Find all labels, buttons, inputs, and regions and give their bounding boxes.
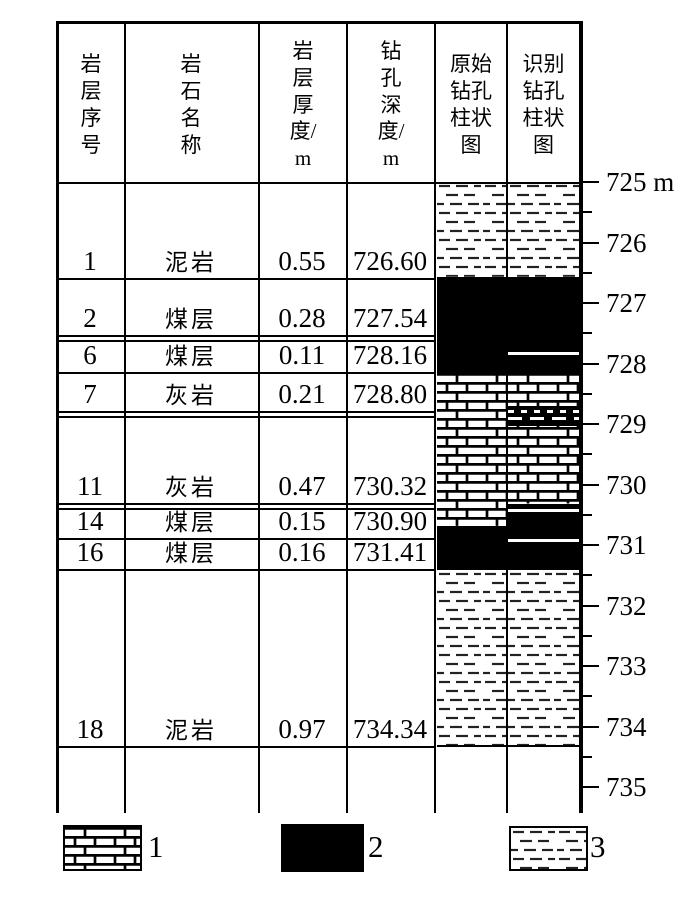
cell-thickness: 0.21 xyxy=(261,379,343,410)
depth-tick-major xyxy=(583,423,599,425)
row-divider-double xyxy=(56,416,436,418)
cell-layer-no: 14 xyxy=(59,506,121,537)
cell-layer-no: 16 xyxy=(59,537,121,568)
header-layer-no: 岩 层 序 号 xyxy=(58,30,124,180)
cell-depth: 731.41 xyxy=(349,537,431,568)
lith-band-mudstone xyxy=(437,182,506,279)
cell-thickness: 0.28 xyxy=(261,303,343,334)
column-divider xyxy=(506,21,508,813)
cell-layer-no: 1 xyxy=(59,246,121,277)
cell-layer-no: 7 xyxy=(59,379,121,410)
cell-rock-name: 煤层 xyxy=(127,534,255,568)
cell-layer-no: 11 xyxy=(59,471,121,502)
legend-label-limestone: 1 xyxy=(148,829,178,865)
cell-rock-name: 泥岩 xyxy=(127,243,255,277)
lith-band-coal xyxy=(508,506,579,570)
cell-thickness: 0.97 xyxy=(261,714,343,745)
cell-depth: 734.34 xyxy=(349,714,431,745)
cell-depth: 728.16 xyxy=(349,340,431,371)
depth-tick-label: 729 xyxy=(606,408,647,440)
depth-tick-major xyxy=(583,181,599,183)
depth-tick-minor xyxy=(583,332,592,334)
row-divider xyxy=(56,372,436,374)
header-original-log: 原始 钻孔 柱状 图 xyxy=(438,30,504,180)
layer-separator-line xyxy=(508,509,579,512)
table-header-divider xyxy=(56,182,583,184)
lith-band-mudstone xyxy=(437,570,506,747)
row-divider xyxy=(56,569,436,571)
depth-tick-label: 727 xyxy=(606,287,647,319)
cell-rock-name: 泥岩 xyxy=(127,711,255,745)
depth-tick-minor xyxy=(583,574,592,576)
cell-thickness: 0.11 xyxy=(261,340,343,371)
depth-tick-minor xyxy=(583,272,592,274)
depth-tick-minor xyxy=(583,695,592,697)
cell-thickness: 0.15 xyxy=(261,506,343,537)
cell-depth: 730.90 xyxy=(349,506,431,537)
depth-tick-minor xyxy=(583,211,592,213)
depth-tick-label: 726 xyxy=(606,227,647,259)
depth-tick-major xyxy=(583,786,599,788)
row-divider xyxy=(56,746,436,748)
cell-thickness: 0.47 xyxy=(261,471,343,502)
header-rock-name: 岩 石 名 称 xyxy=(126,30,256,180)
cell-rock-name: 煤层 xyxy=(127,337,255,371)
boundary-dotted-line xyxy=(508,410,579,413)
depth-tick-label: 728 xyxy=(606,348,647,380)
layer-separator-line xyxy=(508,352,579,355)
depth-tick-minor xyxy=(583,393,592,395)
cell-rock-name: 灰岩 xyxy=(127,376,255,410)
lith-band-coal xyxy=(508,279,579,373)
depth-tick-major xyxy=(583,242,599,244)
depth-tick-minor xyxy=(583,756,592,758)
depth-tick-label: 735 xyxy=(606,771,647,803)
limestone-swatch-icon xyxy=(63,825,142,871)
depth-tick-label: 730 xyxy=(606,469,647,501)
depth-tick-major xyxy=(583,363,599,365)
layer-boundary-band xyxy=(508,406,579,426)
lith-band-limestone xyxy=(437,373,506,528)
depth-tick-minor xyxy=(583,635,592,637)
lith-band-coal xyxy=(437,528,506,570)
lith-band-mudstone xyxy=(508,570,579,747)
depth-tick-label: 732 xyxy=(606,590,647,622)
borehole-log-figure: 岩 层 序 号 岩 石 名 称 岩 层 厚 度/ m 钻 孔 深 度/ m 原始… xyxy=(0,0,700,919)
depth-tick-major xyxy=(583,726,599,728)
depth-tick-label: 733 xyxy=(606,650,647,682)
depth-tick-major xyxy=(583,665,599,667)
header-drill-depth: 钻 孔 深 度/ m xyxy=(350,30,432,180)
legend-label-mudstone: 3 xyxy=(590,829,620,865)
depth-tick-minor xyxy=(583,453,592,455)
cell-rock-name: 煤层 xyxy=(127,300,255,334)
header-identified-log: 识别 钻孔 柱状 图 xyxy=(510,30,577,180)
cell-depth: 730.32 xyxy=(349,471,431,502)
depth-tick-label: 731 xyxy=(606,529,647,561)
depth-tick-minor xyxy=(583,514,592,516)
cell-layer-no: 2 xyxy=(59,303,121,334)
lith-band-limestone xyxy=(508,373,579,505)
depth-tick-major xyxy=(583,605,599,607)
depth-ruler-line xyxy=(579,21,583,813)
cell-thickness: 0.55 xyxy=(261,246,343,277)
lith-band-coal xyxy=(437,279,506,373)
row-divider xyxy=(56,278,436,280)
depth-tick-major xyxy=(583,544,599,546)
cell-layer-no: 6 xyxy=(59,340,121,371)
legend-label-coal: 2 xyxy=(368,829,398,865)
lith-band-mudstone xyxy=(508,182,579,279)
cell-rock-name: 煤层 xyxy=(127,503,255,537)
cell-depth: 727.54 xyxy=(349,303,431,334)
cell-depth: 726.60 xyxy=(349,246,431,277)
cell-depth: 728.80 xyxy=(349,379,431,410)
coal-swatch-icon xyxy=(281,824,364,872)
layer-separator-line xyxy=(508,539,579,542)
boundary-dashed-line xyxy=(508,417,579,420)
depth-tick-label: 725 m xyxy=(606,166,674,198)
table-top-border xyxy=(56,21,583,24)
depth-tick-label: 734 xyxy=(606,711,647,743)
cell-thickness: 0.16 xyxy=(261,537,343,568)
depth-tick-major xyxy=(583,484,599,486)
cell-rock-name: 灰岩 xyxy=(127,468,255,502)
header-thickness: 岩 层 厚 度/ m xyxy=(262,30,344,180)
row-divider xyxy=(56,411,436,413)
cell-layer-no: 18 xyxy=(59,714,121,745)
mudstone-swatch-icon xyxy=(509,826,588,871)
depth-tick-major xyxy=(583,302,599,304)
